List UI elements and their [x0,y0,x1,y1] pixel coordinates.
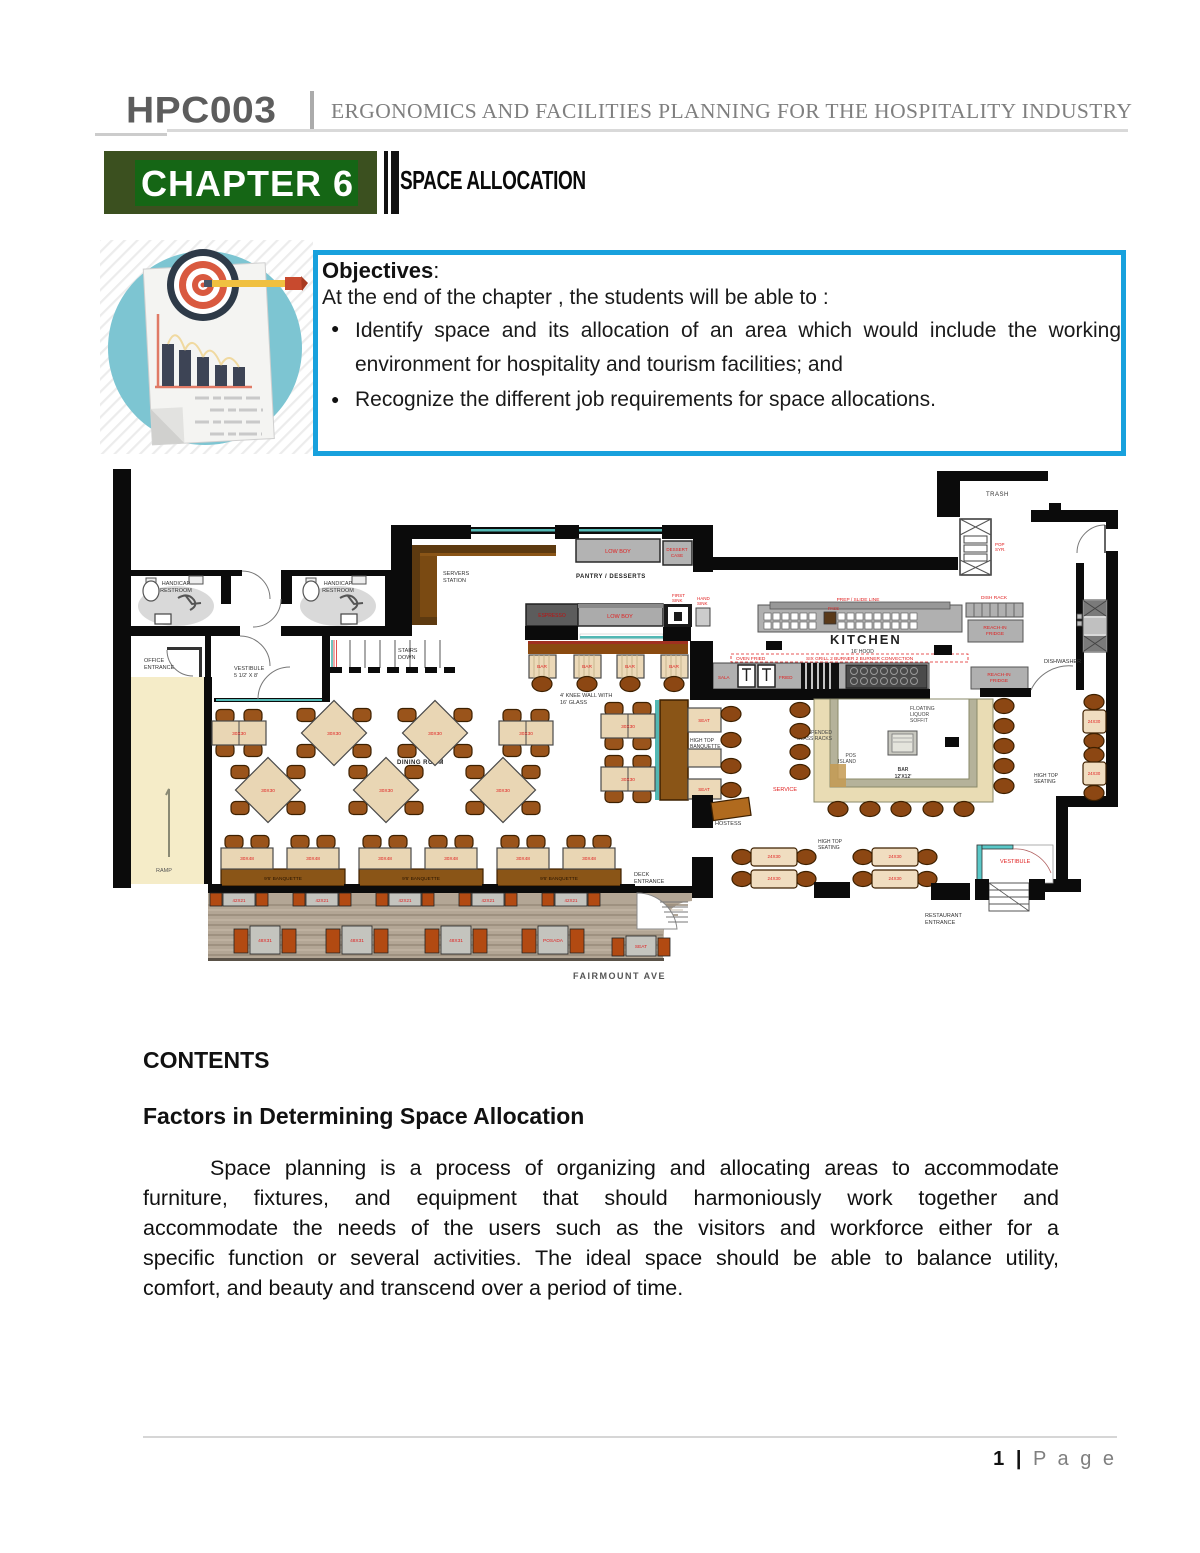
svg-text:42X21: 42X21 [315,898,329,903]
svg-text:30X30: 30X30 [519,731,533,737]
svg-text:30X30: 30X30 [621,777,635,783]
svg-text:BAR: BAR [669,664,679,670]
svg-text:FRIED: FRIED [779,675,793,680]
svg-text:VESTIBULE: VESTIBULE [234,666,265,672]
svg-text:SERVERS: SERVERS [443,571,470,577]
svg-text:TRASH: TRASH [986,492,1009,498]
svg-text:30X48: 30X48 [378,856,392,862]
svg-text:OVEN FRIED: OVEN FRIED [736,656,766,662]
svg-text:RAMP: RAMP [156,868,172,874]
svg-text:SERVICE: SERVICE [773,787,797,793]
svg-text:12'X12': 12'X12' [895,774,912,780]
svg-text:HANDICAP: HANDICAP [324,581,353,587]
svg-text:24X30: 24X30 [767,876,781,881]
svg-text:9'6' BANQUETTE: 9'6' BANQUETTE [402,876,440,882]
svg-text:24X30: 24X30 [767,854,781,859]
svg-text:30X30: 30X30 [379,788,393,794]
svg-text:9'6' BANQUETTE: 9'6' BANQUETTE [264,876,302,882]
svg-text:24X30: 24X30 [1088,719,1101,724]
svg-text:REACH-IN: REACH-IN [987,672,1011,678]
svg-text:SYR.: SYR. [995,547,1006,552]
svg-text:16' GLASS: 16' GLASS [560,700,587,706]
svg-text:30X30: 30X30 [232,731,246,737]
svg-text:OFFICE: OFFICE [144,658,164,664]
svg-text:48X31: 48X31 [350,938,364,944]
svg-text:30X48: 30X48 [516,856,530,862]
svg-text:CASE: CASE [671,553,683,558]
svg-text:FRIDGE: FRIDGE [990,678,1008,684]
svg-text:BAR: BAR [898,767,909,773]
svg-text:30X30: 30X30 [496,788,510,794]
svg-text:42X21: 42X21 [564,898,578,903]
svg-text:42X21: 42X21 [481,898,495,903]
svg-text:SEAT: SEAT [635,944,647,950]
svg-text:SEATING: SEATING [1034,779,1056,785]
svg-text:30X30: 30X30 [428,731,442,737]
svg-text:30X30: 30X30 [621,724,635,730]
svg-text:PASS: PASS [828,606,839,611]
svg-text:VESTIBULE: VESTIBULE [1000,859,1031,865]
svg-text:30X48: 30X48 [240,856,254,862]
svg-text:SEAT: SEAT [698,787,710,792]
svg-text:DECK: DECK [634,872,650,878]
svg-text:SINK: SINK [672,598,683,603]
svg-text:SOFFIT: SOFFIT [910,718,928,724]
svg-text:48X31: 48X31 [449,938,463,944]
svg-text:ENTRANCE: ENTRANCE [925,920,956,926]
svg-text:24X30: 24X30 [888,854,902,859]
svg-text:30X48: 30X48 [582,856,596,862]
svg-text:REACH-IN: REACH-IN [983,625,1007,631]
svg-text:DISH RACK: DISH RACK [981,595,1008,601]
svg-text:FAIRMOUNT AVE: FAIRMOUNT AVE [573,971,666,981]
svg-text:SEAT: SEAT [698,718,710,723]
svg-text:30X48: 30X48 [306,856,320,862]
svg-text:LOW BOY: LOW BOY [607,614,633,620]
svg-text:4' KNEE WALL WITH: 4' KNEE WALL WITH [560,693,612,699]
svg-text:ENTRANCE: ENTRANCE [634,879,665,885]
svg-text:42X21: 42X21 [232,898,246,903]
svg-text:DISHWASHER: DISHWASHER [1044,659,1081,665]
svg-text:STAIRS: STAIRS [398,648,418,654]
svg-text:SIX GRILL 2 BURNER 2 BURNER: SIX GRILL 2 BURNER 2 BURNER CONVECTION [806,656,914,662]
svg-text:STATION: STATION [443,578,466,584]
svg-text:ISLAND: ISLAND [838,759,856,765]
svg-text:HANDICAP: HANDICAP [162,581,191,587]
svg-text:PANTRY / DESSERTS: PANTRY / DESSERTS [576,574,646,580]
svg-text:BAR: BAR [582,664,592,670]
svg-text:RESTROOM: RESTROOM [160,588,192,594]
svg-text:5 1/2' X 8': 5 1/2' X 8' [234,673,258,679]
svg-text:POSADA: POSADA [543,938,564,944]
svg-text:HOSTESS: HOSTESS [715,821,742,827]
svg-text:24X30: 24X30 [888,876,902,881]
svg-text:DOWN: DOWN [398,655,415,661]
svg-text:KITCHEN: KITCHEN [830,632,902,647]
svg-text:BAR: BAR [537,664,547,670]
svg-text:SINK: SINK [697,601,708,606]
svg-text:42X21: 42X21 [398,898,412,903]
svg-text:RESTROOM: RESTROOM [322,588,354,594]
svg-text:FRIDGE: FRIDGE [986,631,1004,637]
svg-text:SALA: SALA [718,675,730,680]
svg-text:24X30: 24X30 [1088,771,1101,776]
svg-text:DESSERT: DESSERT [666,547,687,552]
svg-text:ENTRANCE: ENTRANCE [144,665,175,671]
svg-text:SEATING: SEATING [818,845,840,851]
svg-text:PREP / SLIDE LINE: PREP / SLIDE LINE [837,597,880,603]
svg-text:BAR: BAR [625,664,635,670]
svg-text:30X30: 30X30 [261,788,275,794]
svg-text:RESTAURANT: RESTAURANT [925,913,963,919]
svg-text:ESPRESSO: ESPRESSO [538,613,566,619]
svg-text:48X31: 48X31 [258,938,272,944]
svg-text:30X48: 30X48 [444,856,458,862]
svg-text:LOW BOY: LOW BOY [605,549,631,555]
svg-text:9'6' BANQUETTE: 9'6' BANQUETTE [540,876,578,882]
svg-text:30X30: 30X30 [327,731,341,737]
